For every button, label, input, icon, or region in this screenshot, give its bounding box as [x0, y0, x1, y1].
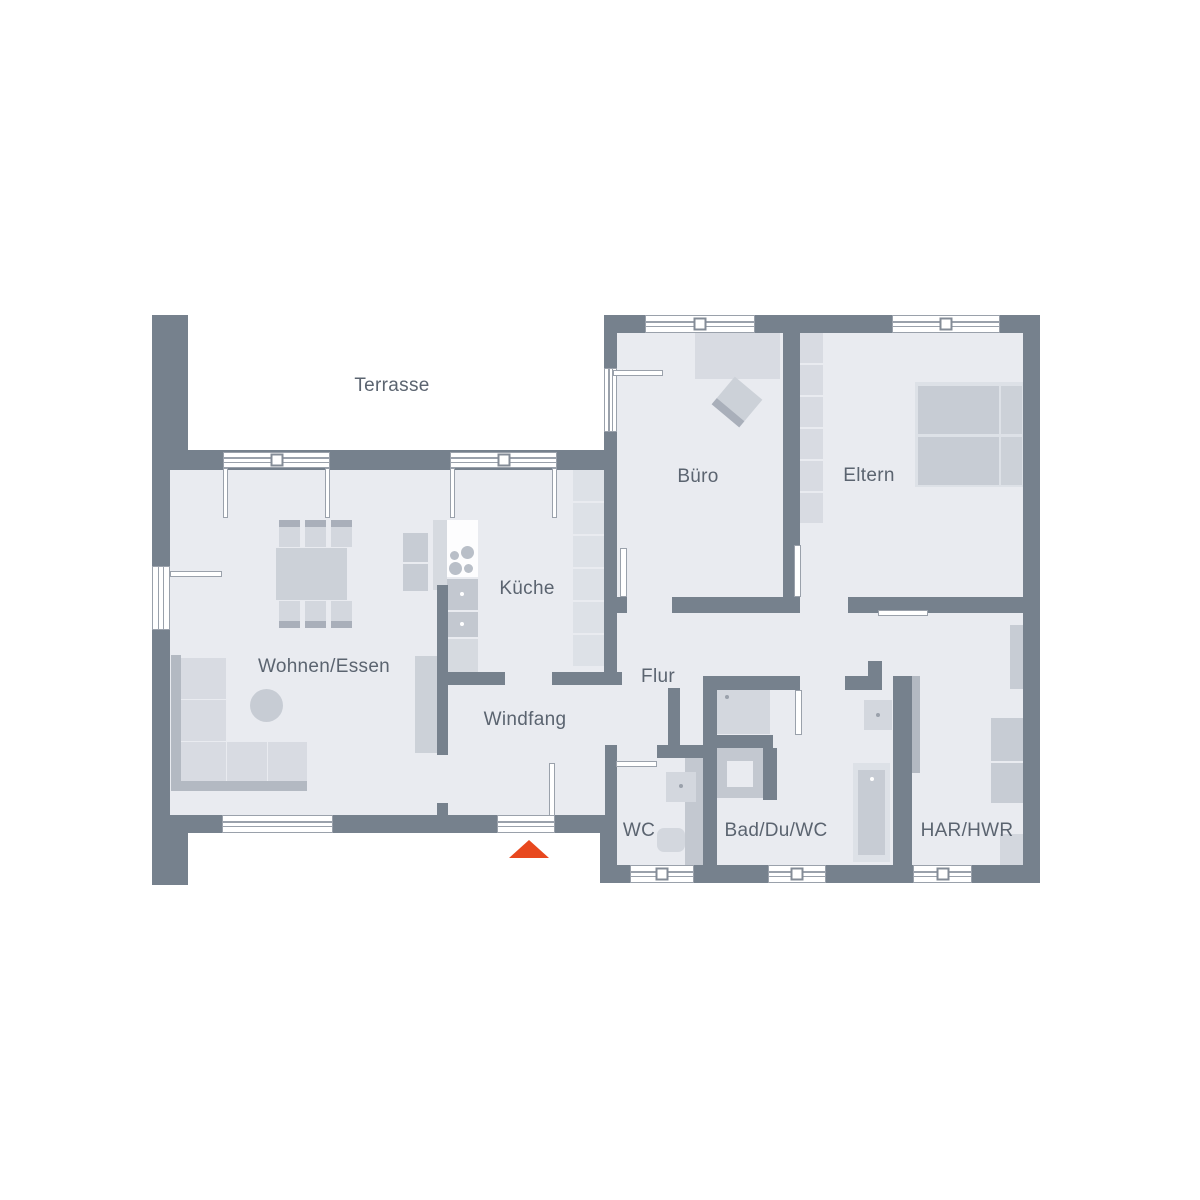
bad-door-leaf — [795, 690, 802, 735]
window-mullion — [158, 567, 160, 629]
room-label-flur: Flur — [641, 666, 675, 688]
washing-machine — [991, 718, 1023, 761]
window-mark — [656, 868, 669, 881]
eltern-window — [892, 315, 1000, 333]
sofa-back-bottom — [171, 781, 307, 791]
bad-vanity-inner — [727, 761, 753, 787]
oven — [447, 612, 478, 637]
wall-segment — [868, 661, 882, 690]
window-mark — [791, 868, 804, 881]
window-mullion — [498, 821, 554, 823]
stove-dot — [461, 546, 474, 559]
pillow — [1001, 437, 1022, 485]
wall-segment — [893, 676, 912, 865]
sofa-cushion — [181, 700, 226, 741]
mattress — [918, 437, 999, 485]
dining-chair-back — [331, 520, 352, 527]
stove-dot — [449, 562, 462, 575]
eltern-door-leaf — [794, 545, 801, 597]
coffee-table — [250, 689, 283, 722]
wall-segment — [152, 455, 170, 815]
window-mark — [694, 318, 707, 331]
entrance-sill — [497, 815, 555, 833]
wall-segment — [604, 597, 627, 613]
kitchen-counter — [447, 639, 478, 672]
window-mark — [940, 318, 953, 331]
oven-dot — [460, 622, 464, 626]
wc-window — [630, 865, 694, 883]
har-door-leaf — [878, 610, 928, 616]
buero-terrace-door — [604, 368, 617, 432]
room-label-bad-du-wc: Bad/Du/WC — [724, 820, 827, 842]
har-cabinet — [1010, 625, 1023, 689]
wohnen-window — [222, 815, 333, 833]
bad-washbasin — [864, 700, 892, 730]
dining-chair — [279, 601, 300, 628]
wall-segment — [845, 676, 868, 690]
sofa-cushion — [227, 742, 267, 781]
window-mullion — [163, 567, 165, 629]
dining-chair — [331, 520, 352, 547]
har-window — [913, 865, 972, 883]
terrace-door-1-right-leaf — [325, 468, 330, 518]
bad-window — [768, 865, 826, 883]
pillow — [1001, 386, 1022, 434]
bathtub-inner — [858, 770, 885, 855]
bathtub — [853, 763, 890, 862]
dining-chair — [279, 520, 300, 547]
sofa-cushion — [268, 742, 307, 781]
bathtub-dot — [870, 777, 874, 781]
buero-window — [645, 315, 755, 333]
room-label-har-hwr: HAR/HWR — [921, 820, 1014, 842]
wall-segment — [703, 690, 717, 865]
terrace-door-unit-1 — [223, 452, 330, 468]
stove-dot — [450, 551, 459, 560]
wc-plumbing-wall — [685, 752, 703, 865]
dining-chair-back — [279, 520, 300, 527]
window-mullion — [608, 369, 610, 431]
terrace-door-2-right-leaf — [552, 468, 557, 518]
dining-table — [276, 548, 347, 600]
dryer — [991, 763, 1023, 803]
dining-chair — [305, 601, 326, 628]
terrace-door-unit-2 — [450, 452, 557, 468]
kitchen-side-panel — [433, 520, 447, 590]
wall-segment — [605, 745, 617, 758]
kitchen-tall-cabinets — [573, 470, 604, 666]
mattress — [918, 386, 999, 434]
wall-segment — [1023, 315, 1040, 883]
entrance-door-leaf — [549, 763, 555, 816]
sofa-back-left — [171, 655, 181, 791]
window-mullion — [612, 369, 614, 431]
wc-toilet — [657, 828, 685, 852]
wall-segment — [152, 315, 188, 455]
wall-segment — [552, 672, 622, 685]
wc-door-leaf — [616, 761, 657, 767]
window-mullion — [223, 821, 332, 823]
tv-board — [415, 656, 437, 753]
wall-segment — [703, 676, 800, 690]
terrace-door-1-left-leaf — [223, 468, 228, 518]
floor-plan-canvas: TerrasseBüroElternKücheWohnen/EssenFlurW… — [0, 0, 1200, 1200]
sofa-cushion — [181, 742, 226, 781]
wall-segment — [657, 745, 703, 758]
room-label-buero: Büro — [677, 466, 718, 488]
buero-door-leaf — [620, 548, 627, 597]
window-mullion — [223, 826, 332, 828]
kitchen-island — [403, 564, 428, 591]
kitchen-counter — [447, 520, 478, 543]
window-mullion — [498, 826, 554, 828]
window-mark — [497, 454, 510, 467]
buero-terrace-door-leaf-leaf — [613, 370, 663, 376]
wall-segment — [437, 803, 448, 817]
room-label-terrasse: Terrasse — [354, 375, 429, 397]
room-label-kueche: Küche — [499, 578, 554, 600]
terrace-door-2-left-leaf — [450, 468, 455, 518]
dining-chair-back — [305, 621, 326, 628]
bad-vanity — [717, 748, 763, 798]
wc-washbasin-dot — [679, 784, 683, 788]
kitchen-island — [403, 533, 428, 562]
room-label-wohnen-essen: Wohnen/Essen — [258, 656, 390, 678]
dining-chair-back — [305, 520, 326, 527]
wall-segment — [763, 748, 777, 800]
wohnen-side-door-leaf-leaf — [170, 571, 222, 577]
wohnen-side-door — [152, 566, 170, 630]
dining-chair — [331, 601, 352, 628]
stove — [447, 543, 478, 577]
room-label-eltern: Eltern — [843, 465, 894, 487]
oven-dot — [460, 592, 464, 596]
dining-chair-back — [331, 621, 352, 628]
wall-segment — [703, 735, 773, 748]
har-wall-shadow — [912, 676, 920, 773]
room-label-windfang: Windfang — [484, 709, 567, 731]
entrance-marker — [509, 840, 549, 858]
wall-segment — [437, 585, 448, 755]
room-label-wc: WC — [623, 820, 655, 842]
sofa-cushion — [181, 658, 226, 699]
dining-chair-back — [279, 621, 300, 628]
wall-segment — [848, 597, 1023, 613]
bad-washbasin-dot — [876, 713, 880, 717]
window-mark — [270, 454, 283, 467]
stove-dot — [464, 564, 473, 573]
wc-washbasin — [666, 772, 696, 802]
dining-chair — [305, 520, 326, 547]
desk — [695, 333, 780, 379]
wall-segment — [668, 688, 680, 745]
wall-segment — [672, 597, 800, 613]
shower-dot — [725, 695, 729, 699]
oven — [447, 579, 478, 610]
eltern-closet — [800, 333, 823, 524]
window-mark — [936, 868, 949, 881]
